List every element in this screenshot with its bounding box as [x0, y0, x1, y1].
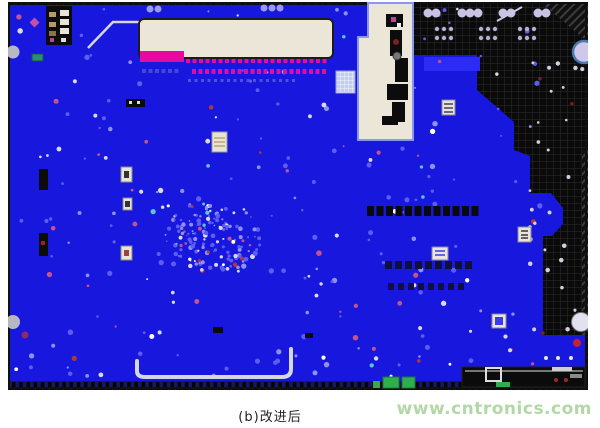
bottom-connector — [462, 367, 585, 387]
center-ic — [212, 132, 227, 152]
watermark-text: www.cntronics.com — [397, 399, 592, 419]
large-drill-pad-top-right — [573, 41, 588, 63]
large-drill-pad-bottom-right — [572, 313, 589, 332]
article-figure-block: (b)改进后 www.cntronics.com — [0, 0, 600, 428]
component-top-left-ic — [46, 6, 72, 45]
teal-component — [32, 54, 43, 61]
pcb-figure — [8, 2, 588, 390]
bright-copper-zone — [424, 57, 480, 71]
red-pad-left — [22, 332, 29, 339]
hatched-component — [336, 71, 355, 93]
pcb-layout-image — [8, 2, 588, 390]
magenta-pad-block — [140, 51, 184, 62]
red-marker-bottom-right — [573, 339, 581, 347]
